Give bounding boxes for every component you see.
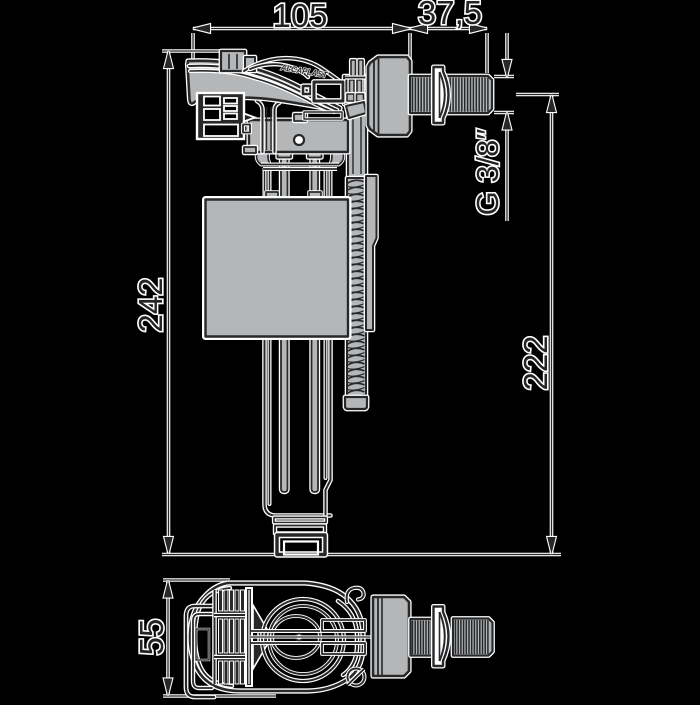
svg-text:222: 222 xyxy=(517,335,554,390)
svg-text:37,5: 37,5 xyxy=(418,0,482,31)
svg-text:105: 105 xyxy=(272,0,327,34)
svg-text:55: 55 xyxy=(133,619,170,656)
svg-text:G 3/8″: G 3/8″ xyxy=(470,129,505,216)
svg-text:242: 242 xyxy=(132,277,169,332)
